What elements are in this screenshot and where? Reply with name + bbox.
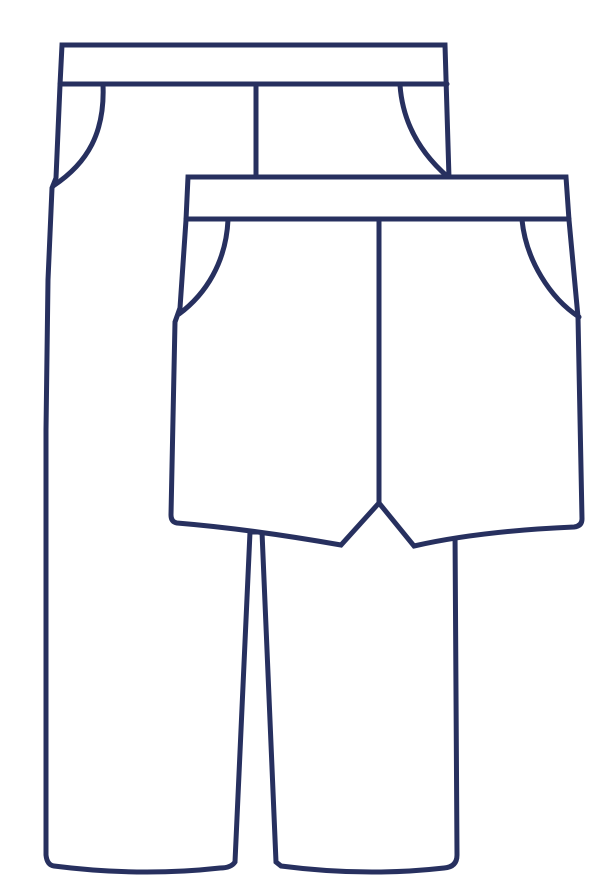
shorts-illustration [171,177,582,546]
line-art-group [46,45,582,872]
illustration-canvas [0,0,600,896]
pants-shorts-illustration [0,0,600,896]
